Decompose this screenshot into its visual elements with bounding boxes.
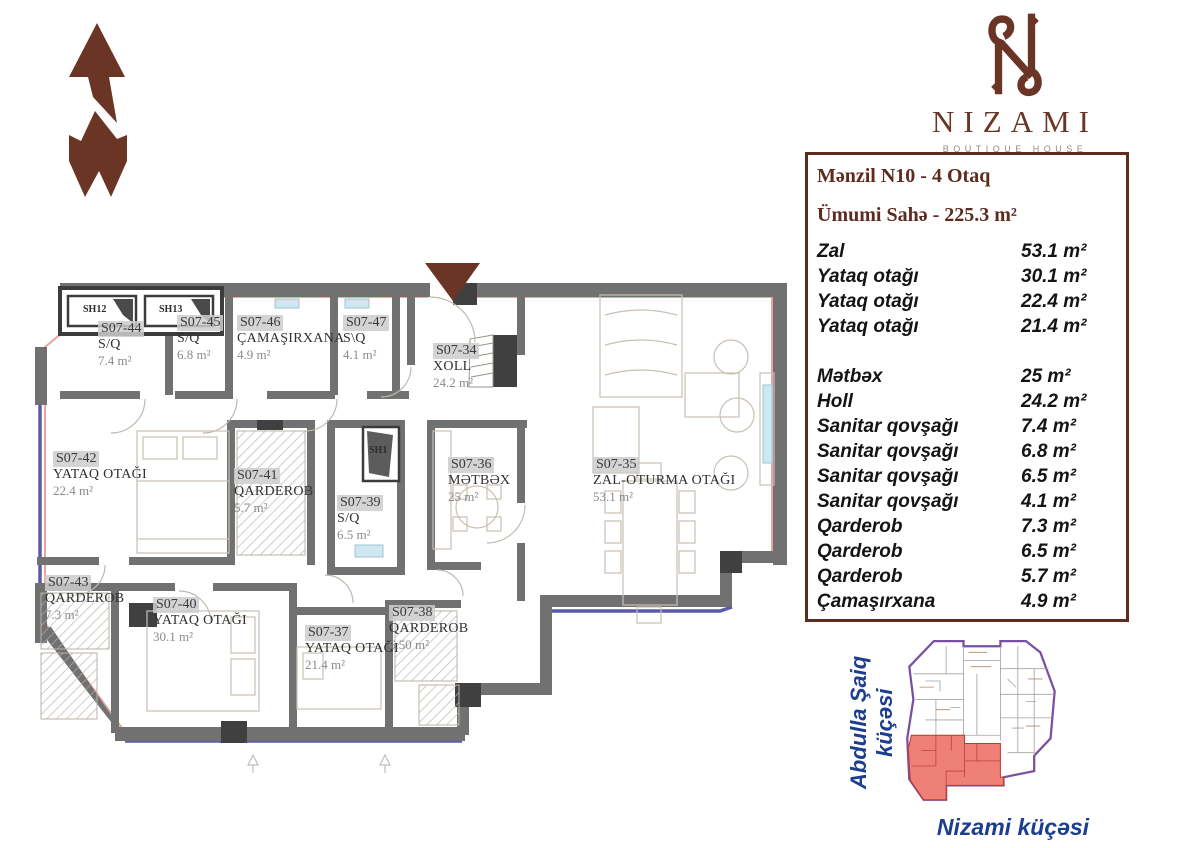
building-minimap: [905, 638, 1061, 810]
total-area: Ümumi Sahə - 225.3 m²: [817, 204, 1117, 227]
room-label-s07-37: S07-37 YATAQ OTAĞI 21.4 m²: [305, 625, 399, 673]
table-row-spacer: [817, 339, 1117, 364]
table-row: Çamaşırxana4.9 m²: [817, 589, 1117, 614]
north-arrow: [55, 15, 140, 205]
table-row: Qarderob5.7 m²: [817, 564, 1117, 589]
apartment-title: Mənzil N10 - 4 Otaq: [817, 165, 1117, 188]
table-row: Zal53.1 m²: [817, 239, 1117, 264]
table-row: Qarderob6.5 m²: [817, 539, 1117, 564]
table-row: Yataq otağı30.1 m²: [817, 264, 1117, 289]
room-label-s07-35: S07-35 ZAL-OTURMA OTAĞI 53.1 m²: [593, 457, 736, 505]
street-label-abdulla-shaiq: Abdulla Şaiq küçəsi: [846, 630, 896, 815]
table-row: Yataq otağı21.4 m²: [817, 314, 1117, 339]
apartment-info-panel: Mənzil N10 - 4 Otaq Ümumi Sahə - 225.3 m…: [805, 152, 1129, 622]
table-row: Holl24.2 m²: [817, 389, 1117, 414]
room-label-s07-36: S07-36 MƏTBƏX 25 m²: [448, 457, 510, 505]
table-row: Sanitar qovşağı6.5 m²: [817, 464, 1117, 489]
room-label-s07-34: S07-34 XOLL 24.2 m²: [433, 343, 479, 391]
table-row: Yataq otağı22.4 m²: [817, 289, 1117, 314]
room-label-s07-45: S07-45 S/Q 6.8 m²: [177, 315, 223, 363]
room-label-s07-46: S07-46 ÇAMAŞIRXANA 4.9 m²: [237, 315, 345, 363]
table-row: Sanitar qovşağı4.1 m²: [817, 489, 1117, 514]
nizami-monogram-icon: [982, 8, 1048, 98]
room-label-s07-40: S07-40 YATAQ OTAĞI 30.1 m²: [153, 597, 247, 645]
shaft-label-sh12: SH12: [83, 304, 106, 315]
brand-name: NIZAMI: [880, 104, 1150, 140]
room-label-s07-38: S07-38 QARDEROB 6.50 m²: [389, 605, 468, 653]
table-row: Qarderob7.3 m²: [817, 514, 1117, 539]
room-label-s07-44: S07-44 S/Q 7.4 m²: [98, 321, 144, 369]
site-map: Abdulla Şaiq küçəsi Nizami küçəsi: [858, 632, 1148, 848]
room-area-table: Zal53.1 m² Yataq otağı30.1 m² Yataq otağ…: [817, 239, 1117, 614]
floor-plan: S07-44 S/Q 7.4 m² S07-45 S/Q 6.8 m² S07-…: [25, 255, 797, 803]
table-row: Sanitar qovşağı7.4 m²: [817, 414, 1117, 439]
room-label-s07-39: S07-39 S/Q 6.5 m²: [337, 495, 383, 543]
brand-logo: NIZAMI BOUTIQUE HOUSE: [880, 8, 1150, 154]
street-label-nizami: Nizami küçəsi: [913, 814, 1113, 841]
room-label-s07-43: S07-43 QARDEROB 7.3 m²: [45, 575, 124, 623]
room-label-s07-47: S07-47 S\Q 4.1 m²: [343, 315, 389, 363]
shaft-label-sh1: SH1: [369, 445, 387, 456]
shaft-label-sh13: SH13: [159, 304, 182, 315]
room-label-s07-41: S07-41 QARDEROB 5.7 m²: [234, 468, 313, 516]
table-row: Sanitar qovşağı6.8 m²: [817, 439, 1117, 464]
table-row: Mətbəx25 m²: [817, 364, 1117, 389]
room-label-s07-42: S07-42 YATAQ OTAĞI 22.4 m²: [53, 451, 147, 499]
